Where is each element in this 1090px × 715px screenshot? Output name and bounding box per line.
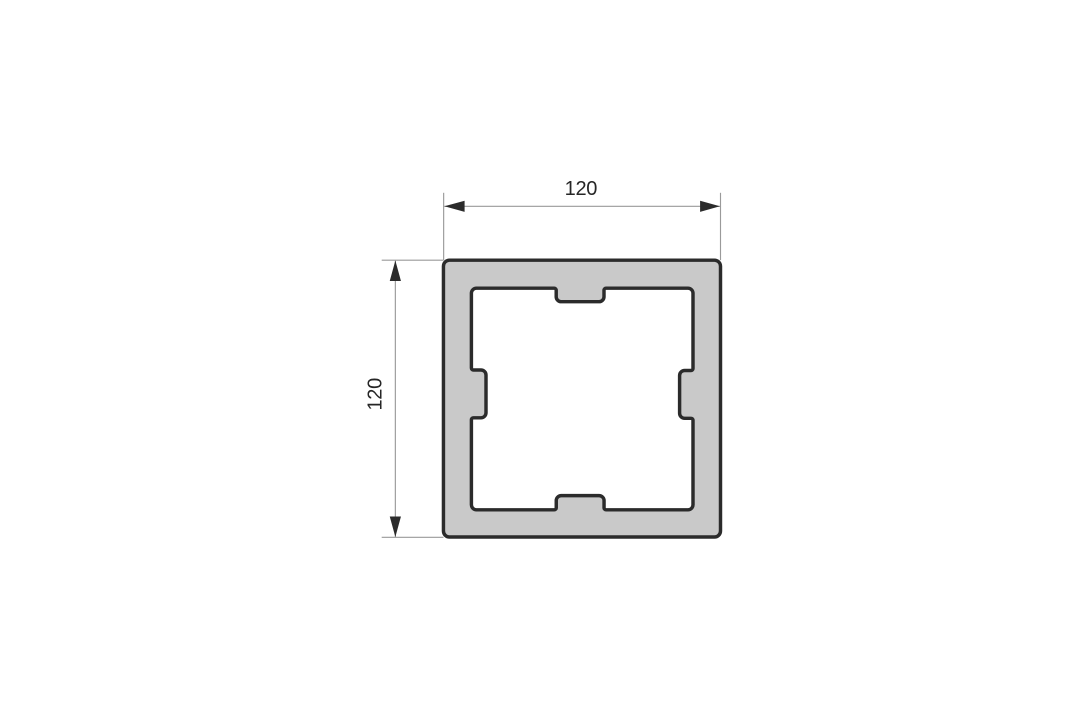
svg-text:120: 120 <box>364 378 386 411</box>
svg-text:120: 120 <box>565 178 598 200</box>
